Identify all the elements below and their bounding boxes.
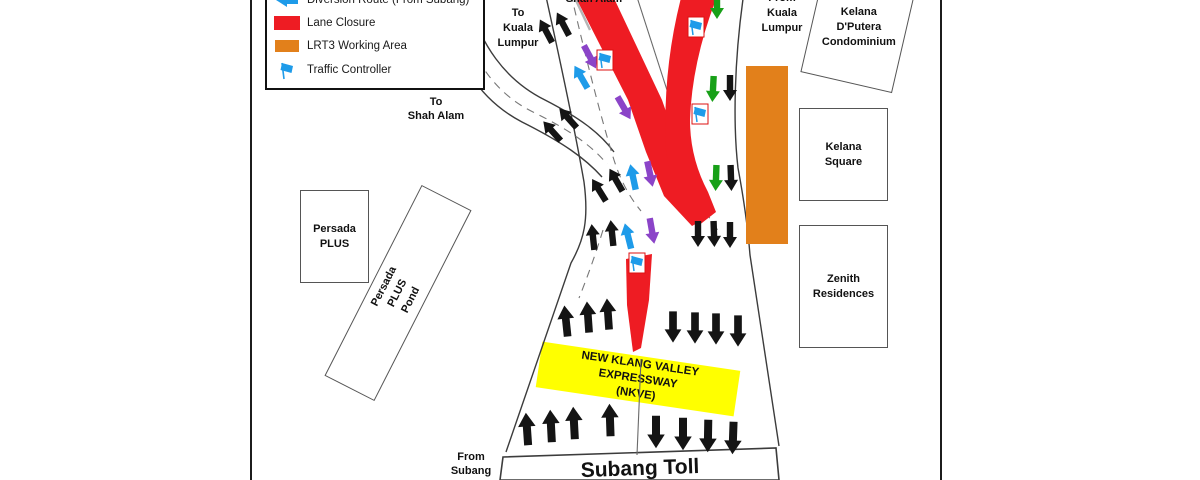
traffic-arrow-black <box>603 165 628 195</box>
traffic-arrow-blue <box>568 62 593 92</box>
traffic-arrow-green <box>709 165 724 191</box>
traffic-arrow-black <box>730 315 747 346</box>
traffic-arrow-black <box>674 418 692 451</box>
traffic-arrow-black <box>538 117 566 146</box>
traffic-arrow-green <box>705 76 720 103</box>
label-to-shah-alam: To Shah Alam <box>403 95 469 123</box>
traffic-arrow-black <box>707 221 722 247</box>
traffic-arrow-black <box>724 165 739 191</box>
lrt3-working-area <box>746 66 788 244</box>
traffic-arrow-black <box>585 223 602 250</box>
traffic-arrow-black <box>599 298 618 330</box>
traffic-arrow-black <box>579 301 598 333</box>
traffic-arrow-black <box>687 312 704 343</box>
traffic-arrow-black <box>586 175 612 204</box>
building-zenith-residences: Zenith Residences <box>799 225 888 348</box>
traffic-controller-flag <box>692 104 708 124</box>
traffic-arrow-black <box>723 222 737 248</box>
traffic-arrow-blue <box>623 163 642 191</box>
legend-row-lrt3: LRT3 Working Area <box>267 36 483 56</box>
legend-label-lane-closure: Lane Closure <box>307 17 375 29</box>
roads-canvas <box>0 0 1200 480</box>
traffic-controller-flag <box>597 50 613 70</box>
building-persada-plus-label: Persada PLUS <box>313 222 356 252</box>
traffic-controller-flag <box>688 17 704 37</box>
legend-label-traffic-controller: Traffic Controller <box>307 64 391 76</box>
traffic-arrow-black <box>601 403 620 436</box>
traffic-arrow-black <box>564 406 583 439</box>
road-edge-highway-left <box>506 0 586 452</box>
label-to-kuala-lumpur: To Kuala Lumpur <box>488 6 548 51</box>
building-kelana-dputera-label: Kelana D'Putera Condominium <box>822 4 896 49</box>
label-from-kuala-lumpur: From Kuala Lumpur <box>752 0 812 36</box>
traffic-arrow-black <box>556 305 576 338</box>
traffic-controller-flag <box>629 253 645 273</box>
legend-row-diversion: Diversion Route (From Subang) <box>267 0 483 10</box>
traffic-arrow-black <box>665 311 682 342</box>
traffic-arrow-blue <box>618 222 638 251</box>
label-from-subang: From Subang <box>442 450 500 478</box>
traffic-arrow-black <box>604 219 621 246</box>
building-zenith-residences-label: Zenith Residences <box>813 272 874 302</box>
building-kelana-square: Kelana Square <box>799 108 888 201</box>
diversion-route-icon <box>267 0 307 7</box>
legend-box: Diversion Route (From Subang) Lane Closu… <box>265 0 485 90</box>
plaza-lane-divider <box>637 359 641 455</box>
legend-label-lrt3: LRT3 Working Area <box>307 40 407 52</box>
traffic-arrow-black <box>708 313 725 344</box>
legend-label-diversion: Diversion Route (From Subang) <box>307 0 469 6</box>
building-persada-plus: Persada PLUS <box>300 190 369 283</box>
traffic-arrow-purple <box>643 217 661 245</box>
traffic-diversion-map: NEW KLANG VALLEY EXPRESSWAY (NKVE) <box>0 0 1200 480</box>
lrt3-working-area-swatch-icon <box>267 40 307 52</box>
traffic-arrow-black <box>554 104 582 133</box>
building-kelana-square-label: Kelana Square <box>825 140 862 170</box>
traffic-arrow-black <box>541 409 560 442</box>
legend-row-lane-closure: Lane Closure <box>267 13 483 33</box>
traffic-arrow-black <box>517 412 537 446</box>
traffic-controller-flag-icon <box>267 60 307 80</box>
label-shah-alam-top: Shah Alam <box>554 0 634 7</box>
lane-closure-swatch-icon <box>267 16 307 30</box>
traffic-arrow-black <box>647 416 665 449</box>
traffic-arrow-black <box>699 420 717 453</box>
legend-row-traffic-controller: Traffic Controller <box>267 60 483 80</box>
